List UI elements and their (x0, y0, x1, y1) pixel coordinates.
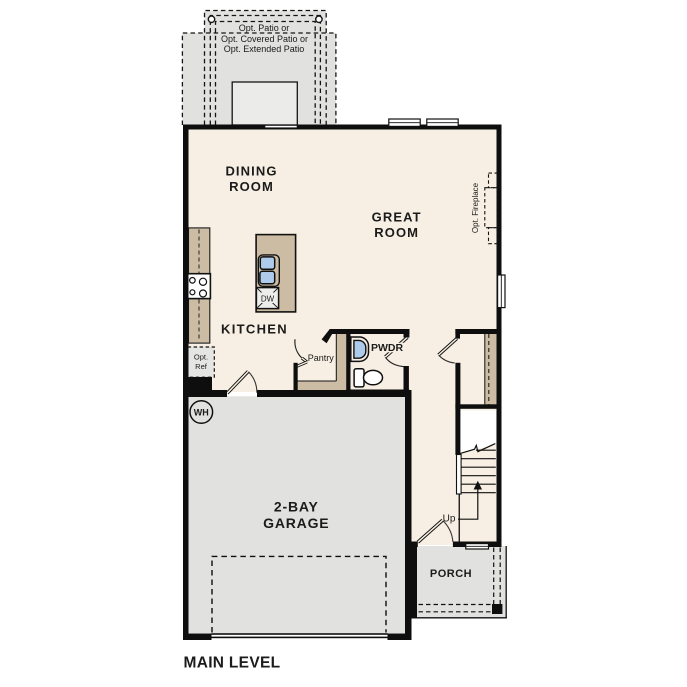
svg-text:DINING: DINING (225, 164, 277, 179)
svg-text:Opt. Fireplace: Opt. Fireplace (471, 182, 480, 233)
svg-text:DW: DW (261, 295, 275, 304)
svg-text:Pantry: Pantry (308, 353, 335, 363)
svg-text:GREAT: GREAT (372, 210, 422, 225)
svg-text:KITCHEN: KITCHEN (221, 322, 288, 337)
svg-text:ROOM: ROOM (229, 179, 274, 194)
svg-text:Ref: Ref (195, 362, 208, 371)
svg-text:MAIN LEVEL: MAIN LEVEL (184, 655, 281, 672)
svg-text:ROOM: ROOM (374, 225, 419, 240)
svg-text:PWDR: PWDR (371, 342, 403, 354)
svg-text:2-BAY: 2-BAY (274, 499, 319, 515)
svg-text:GARAGE: GARAGE (263, 515, 329, 531)
svg-text:Opt. Extended Patio: Opt. Extended Patio (224, 44, 305, 54)
svg-text:PORCH: PORCH (430, 568, 472, 580)
svg-text:Opt.: Opt. (194, 353, 208, 362)
svg-text:Opt. Covered Patio or: Opt. Covered Patio or (221, 34, 308, 44)
svg-text:Opt. Patio or: Opt. Patio or (239, 23, 290, 33)
svg-text:WH: WH (194, 407, 209, 417)
